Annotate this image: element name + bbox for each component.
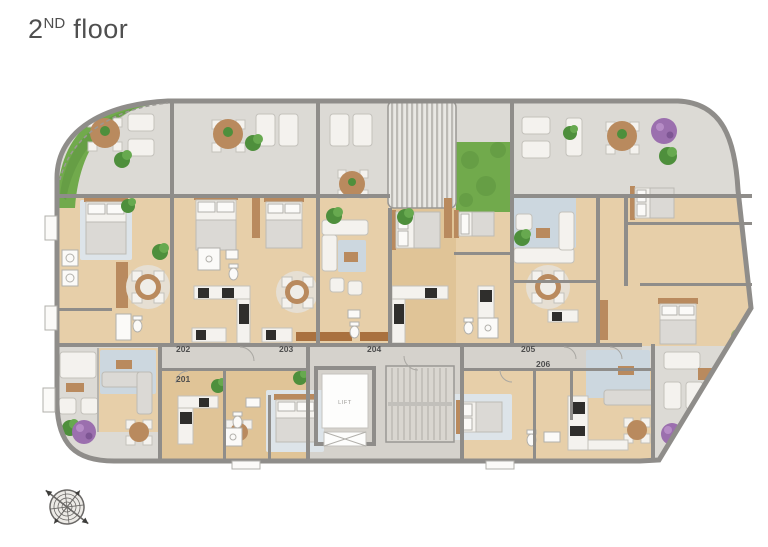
terrace-table-icon bbox=[88, 118, 122, 151]
bed-icon bbox=[264, 196, 304, 248]
pergola-canopy bbox=[388, 101, 456, 208]
unit-label-203: 203 bbox=[279, 344, 293, 354]
unit-label-202: 202 bbox=[176, 344, 190, 354]
dining-table-icon bbox=[126, 265, 170, 309]
dining-table-icon bbox=[126, 420, 152, 445]
dining-table-icon bbox=[624, 418, 650, 443]
dining-table-icon bbox=[526, 265, 570, 309]
floor-plan-drawing: LIFT bbox=[0, 0, 768, 547]
stairs-icon bbox=[386, 366, 454, 442]
bed-icon bbox=[630, 186, 674, 220]
lift-label: LIFT bbox=[338, 400, 352, 406]
bed-icon bbox=[658, 298, 698, 344]
door-threshold bbox=[296, 332, 352, 341]
wardrobe-icon bbox=[600, 300, 608, 340]
terrace-table-icon bbox=[606, 121, 639, 154]
unit-label-201: 201 bbox=[176, 374, 190, 384]
unit-label-206: 206 bbox=[536, 359, 550, 369]
bed-icon bbox=[274, 394, 318, 442]
bed-icon bbox=[454, 210, 494, 238]
terrace-table-icon bbox=[212, 119, 245, 152]
wardrobe-icon bbox=[252, 198, 260, 238]
compass-rose-icon bbox=[33, 474, 101, 540]
unit-label-204: 204 bbox=[367, 344, 381, 354]
dining-table-icon bbox=[276, 271, 318, 313]
unit-label-205: 205 bbox=[521, 344, 535, 354]
wardrobe-icon bbox=[444, 198, 452, 238]
floor-plan-page: 2ND floor bbox=[0, 0, 768, 547]
lift: LIFT bbox=[316, 368, 374, 446]
terrace-table-icon bbox=[338, 170, 368, 198]
bed-icon bbox=[194, 194, 238, 250]
window-wall bbox=[97, 348, 99, 432]
